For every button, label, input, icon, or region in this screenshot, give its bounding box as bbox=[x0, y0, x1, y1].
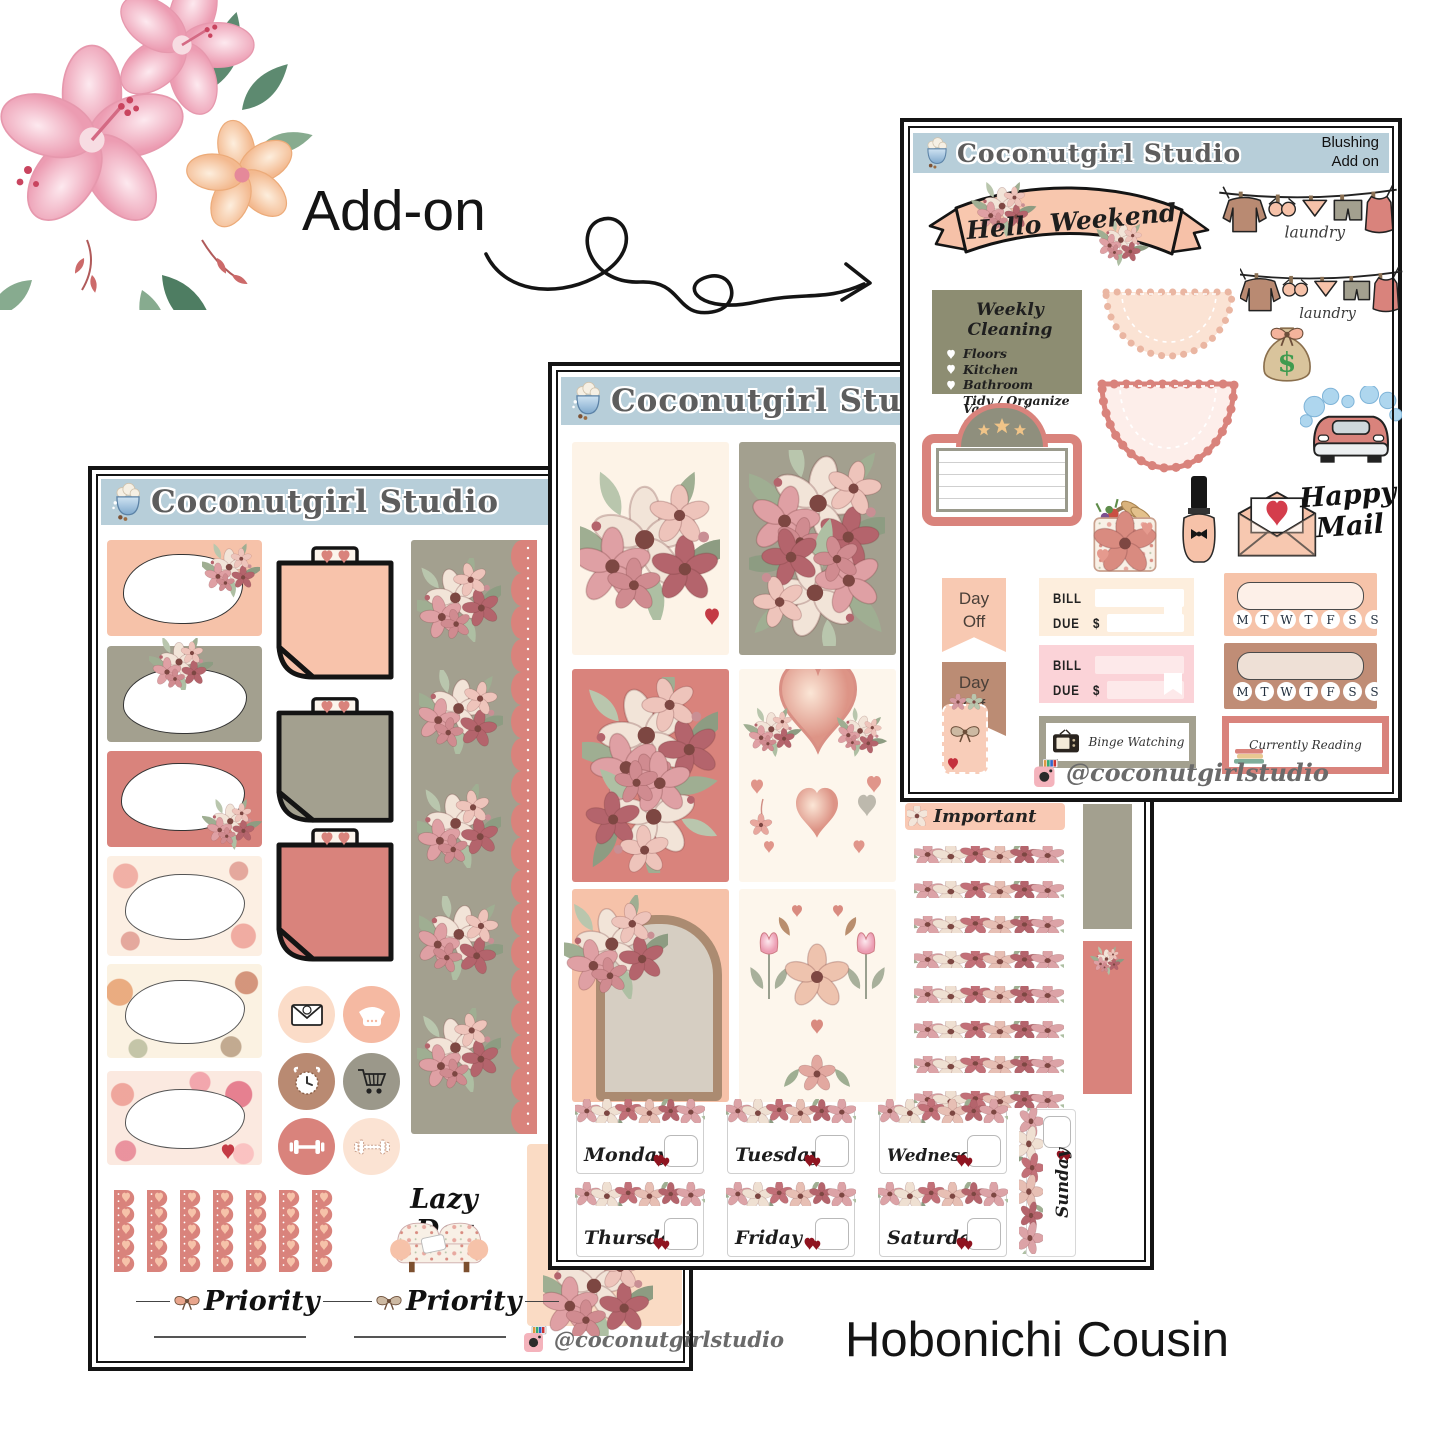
alarm-clock-icon bbox=[278, 1053, 335, 1110]
grocery-tote-icon bbox=[1088, 490, 1162, 578]
scallop-edge bbox=[509, 540, 537, 1134]
sheet-header: Coconutgirl Studio Blushing Add on bbox=[913, 133, 1389, 173]
lace-border-sticker bbox=[147, 1190, 171, 1272]
label-box-floral-hearts bbox=[107, 856, 262, 956]
floral-garland-strip bbox=[914, 1021, 1064, 1038]
lace-border-sticker bbox=[279, 1190, 303, 1272]
habit-tracker-sticker: MTWTFSS bbox=[1224, 643, 1377, 709]
svg-text:laundry: laundry bbox=[1285, 223, 1346, 241]
hearts-icon bbox=[956, 1235, 974, 1252]
flowers-icon bbox=[946, 694, 986, 710]
heart-icon bbox=[946, 757, 960, 770]
floral-garland bbox=[726, 1182, 856, 1206]
day-label-sticker: Monday bbox=[576, 1109, 704, 1174]
bill-due-sticker: BILL DUE$ bbox=[1039, 645, 1194, 703]
priority-label: Priority bbox=[338, 1286, 559, 1317]
heart-bullet-icon bbox=[946, 380, 956, 390]
hello-weekend-banner: Hello Weekend bbox=[926, 178, 1212, 274]
heart-bullet-icon bbox=[946, 364, 956, 374]
lace-border-sticker bbox=[213, 1190, 237, 1272]
floral-garland-strip bbox=[914, 916, 1064, 933]
planner-cover-sticker bbox=[942, 704, 988, 774]
dumbbell-icon bbox=[278, 1118, 335, 1175]
floral-garland-strip bbox=[914, 846, 1064, 863]
marquee-schedule-sticker bbox=[922, 434, 1082, 526]
label-box-floral-roses bbox=[107, 1071, 262, 1165]
cocoa-cup-logo-icon bbox=[923, 136, 951, 170]
tracker-title-bar bbox=[1237, 582, 1364, 610]
day-label-sticker: Friday bbox=[727, 1192, 855, 1257]
product-caption: Hobonichi Cousin bbox=[845, 1312, 1229, 1368]
floral-garland bbox=[575, 1099, 705, 1123]
instagram-icon bbox=[1034, 759, 1060, 787]
label-box-peach bbox=[107, 540, 262, 636]
washi-tab-rose bbox=[1083, 941, 1132, 1094]
full-box-floral-rose bbox=[572, 669, 729, 882]
sticky-note-peach bbox=[267, 528, 403, 698]
happy-mail-label: Happy Mail bbox=[1292, 476, 1406, 546]
floral-garland bbox=[575, 1182, 705, 1206]
floral-garland bbox=[878, 1099, 1008, 1123]
day-label-sticker: Saturday bbox=[879, 1192, 1007, 1257]
washi-tab-sage bbox=[1083, 804, 1132, 929]
washi-strip-floral bbox=[411, 540, 537, 1134]
kit-variant-label: Blushing Add on bbox=[1321, 134, 1379, 172]
checkbox bbox=[1043, 1116, 1071, 1148]
doily-sticker bbox=[1090, 374, 1246, 484]
instagram-handle: @coconutgirlstudio bbox=[524, 1326, 784, 1352]
priority-label: Priority bbox=[136, 1286, 357, 1317]
lazy-day-couch bbox=[387, 1210, 497, 1276]
floral-garland bbox=[878, 1182, 1008, 1206]
floral-garland-strip bbox=[914, 951, 1064, 968]
label-box-floral-autumn bbox=[107, 964, 262, 1058]
hearts-icon bbox=[956, 1152, 974, 1169]
marquee-grid bbox=[936, 448, 1068, 512]
phone-icon bbox=[343, 986, 400, 1043]
full-box-floral-sage bbox=[739, 442, 896, 655]
bill-due-sticker: BILL DUE$ bbox=[1039, 578, 1194, 636]
instagram-handle: @coconutgirlstudio bbox=[1034, 758, 1329, 787]
tracker-title-bar bbox=[1237, 652, 1364, 680]
cocoa-cup-logo-icon bbox=[111, 482, 145, 522]
tv-icon bbox=[1051, 729, 1081, 755]
bow-icon bbox=[950, 722, 980, 744]
email-icon bbox=[278, 986, 335, 1043]
weekly-cleaning-checklist: Weekly Cleaning Floors Kitchen Bathroom … bbox=[932, 290, 1082, 394]
full-box-tulip-pattern bbox=[739, 889, 896, 1102]
important-label-sticker: Important bbox=[905, 803, 1065, 830]
full-box-arch-frame bbox=[572, 889, 729, 1102]
lace-border-sticker bbox=[114, 1190, 138, 1272]
sticky-note-rose bbox=[267, 824, 403, 966]
squiggle-arrow-icon bbox=[476, 196, 894, 328]
car-wash-icon bbox=[1300, 386, 1402, 470]
brand-logo-text: Coconutgirl Studio bbox=[151, 484, 499, 520]
nail-polish-icon bbox=[1174, 474, 1224, 566]
shopping-cart-icon bbox=[343, 1053, 400, 1110]
lace-border-sticker bbox=[312, 1190, 336, 1272]
day-label-sticker: Wednesday bbox=[879, 1109, 1007, 1174]
product-collage: Add-on Hobonichi Cousin Coconutgirl Stud… bbox=[0, 0, 1445, 1445]
heart-bullet-icon bbox=[946, 349, 956, 359]
dumbbell-outline-icon bbox=[343, 1118, 400, 1175]
add-on-caption: Add-on bbox=[302, 178, 486, 244]
day-label-sticker: Thursday bbox=[576, 1192, 704, 1257]
floral-garland bbox=[1019, 1108, 1043, 1254]
sticky-note-sage bbox=[267, 696, 403, 824]
hearts-icon bbox=[804, 1235, 822, 1252]
bow-icon bbox=[174, 1292, 200, 1312]
habit-tracker-sticker: MTWTFSS bbox=[1224, 573, 1377, 636]
floral-garland-strip bbox=[914, 1056, 1064, 1073]
hearts-icon bbox=[653, 1235, 671, 1252]
hero-floral-bouquet bbox=[0, 0, 322, 310]
heart-bullet-icon bbox=[946, 411, 956, 421]
hearts-icon bbox=[804, 1152, 822, 1169]
full-box-floral-cream bbox=[572, 442, 729, 655]
lace-border-sticker bbox=[246, 1190, 270, 1272]
sheet-addon-blushing: Coconutgirl Studio Blushing Add on Hello… bbox=[900, 118, 1402, 802]
full-box-hearts bbox=[739, 669, 896, 882]
money-bag-icon: $ bbox=[1256, 320, 1318, 388]
laundry-clothesline: laundry bbox=[1214, 177, 1402, 255]
day-off-flag: DayOff bbox=[942, 578, 1006, 652]
stars-icon bbox=[972, 418, 1032, 438]
floral-garland-strip bbox=[914, 986, 1064, 1003]
label-box-rose bbox=[107, 751, 262, 847]
bow-icon bbox=[376, 1292, 402, 1312]
doily-sticker bbox=[1094, 284, 1244, 370]
heart-bullet-icon bbox=[946, 395, 956, 405]
floral-garland-strip bbox=[914, 881, 1064, 898]
hearts-icon bbox=[653, 1152, 671, 1169]
writing-line bbox=[354, 1336, 506, 1338]
label-box-sage bbox=[107, 646, 262, 742]
svg-text:$: $ bbox=[1278, 348, 1297, 379]
brand-logo-text: Coconutgirl Studio bbox=[957, 139, 1241, 168]
lace-border-sticker bbox=[180, 1190, 204, 1272]
instagram-icon bbox=[524, 1326, 548, 1352]
sunday-label-sticker: Sunday bbox=[1026, 1109, 1076, 1257]
day-label-sticker: Tuesday bbox=[727, 1109, 855, 1174]
flower-icon bbox=[907, 806, 927, 826]
cocoa-cup-logo-icon bbox=[571, 381, 605, 421]
writing-line bbox=[154, 1336, 306, 1338]
floral-garland bbox=[726, 1099, 856, 1123]
